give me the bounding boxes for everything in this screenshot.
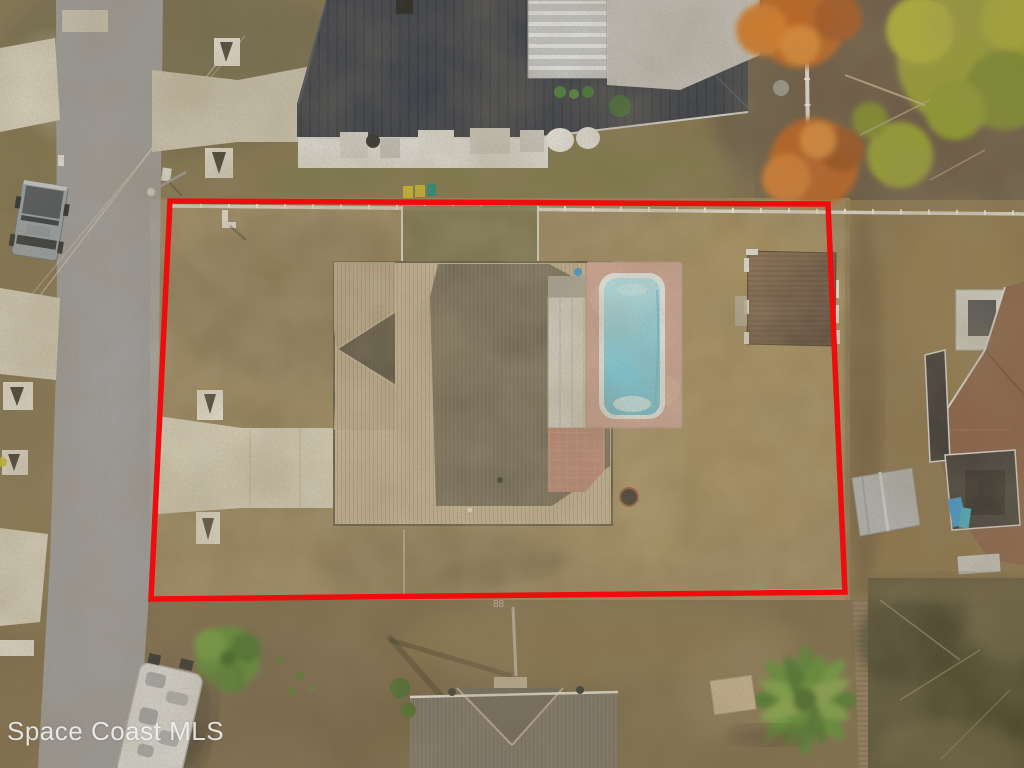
photo-texture: [0, 0, 1024, 768]
aerial-scene: 88: [0, 0, 1024, 768]
watermark: Space Coast MLS: [7, 716, 224, 747]
aerial-photo: 88: [0, 0, 1024, 768]
